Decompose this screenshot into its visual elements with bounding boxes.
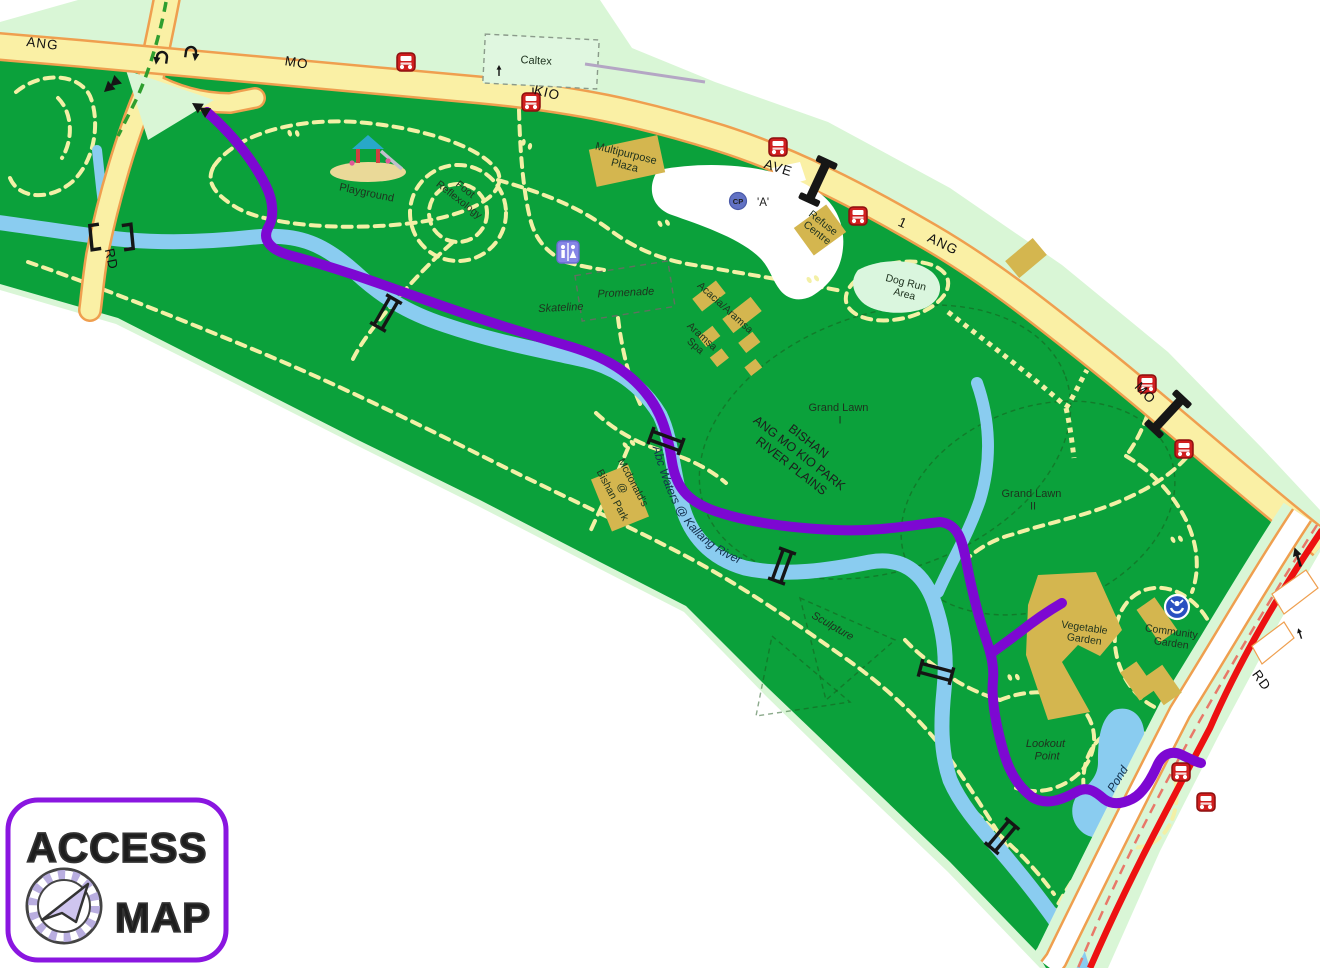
bus-icon	[769, 138, 787, 156]
logo-access-text: ACCESS	[26, 824, 207, 871]
logo-map-text: MAP	[115, 894, 211, 941]
carpark-cp-text: CP	[733, 197, 743, 206]
park-map: CP ANG MO KIO AVE 1 ANG MO RD RD Caltex …	[0, 0, 1320, 968]
carpark-cp-icon: CP	[730, 193, 747, 210]
skateline-label: Skateline	[538, 301, 584, 315]
bus-icon	[849, 207, 867, 225]
carpark-a-label: 'A'	[757, 197, 769, 209]
caltex-label: Caltex	[520, 54, 552, 68]
one-way-arrow-icon	[1296, 627, 1304, 639]
access-map-logo: ACCESS MAP	[8, 800, 226, 960]
gardener-icon	[1165, 595, 1189, 619]
bus-icon	[397, 53, 415, 71]
toilet-icon	[557, 241, 579, 263]
bus-icon	[1172, 763, 1190, 781]
compass-icon	[27, 869, 101, 943]
bus-icon	[1175, 440, 1193, 458]
bus-icon	[1197, 793, 1215, 811]
